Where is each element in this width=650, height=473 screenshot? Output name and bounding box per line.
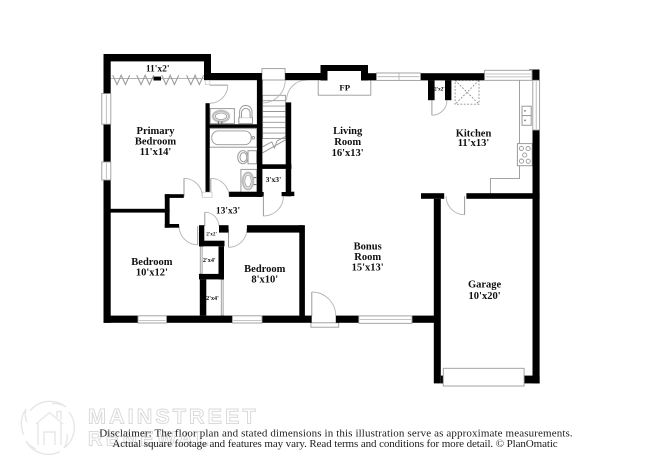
svg-text:Bedroom: Bedroom: [135, 137, 176, 148]
svg-text:10'x12': 10'x12': [136, 268, 168, 279]
svg-text:FP: FP: [339, 82, 350, 92]
svg-text:16'x13': 16'x13': [332, 148, 364, 159]
svg-text:Room: Room: [334, 137, 361, 148]
svg-text:11'x14': 11'x14': [140, 147, 172, 158]
svg-text:Actual square footage and feat: Actual square footage and features may v…: [112, 438, 557, 450]
svg-text:3'x3': 3'x3': [266, 175, 282, 184]
svg-text:15'x13': 15'x13': [352, 262, 384, 273]
svg-text:Primary: Primary: [137, 126, 176, 137]
svg-text:Living: Living: [333, 126, 363, 137]
svg-text:Bedroom: Bedroom: [131, 257, 172, 268]
svg-text:13'x3': 13'x3': [216, 207, 240, 217]
svg-text:10'x20': 10'x20': [469, 291, 501, 302]
svg-text:Bonus: Bonus: [354, 241, 382, 252]
svg-text:2'x2': 2'x2': [206, 232, 217, 238]
svg-text:2'x4': 2'x4': [206, 295, 219, 302]
svg-text:Room: Room: [354, 252, 381, 263]
svg-text:11'x13': 11'x13': [458, 138, 490, 149]
svg-text:11'x2': 11'x2': [146, 64, 170, 74]
svg-text:2'x4': 2'x4': [203, 257, 216, 264]
svg-text:2'x2': 2'x2': [434, 87, 445, 93]
svg-text:8'x10': 8'x10': [251, 275, 278, 286]
svg-text:Garage: Garage: [468, 279, 502, 290]
svg-text:Bedroom: Bedroom: [244, 264, 285, 275]
svg-text:MAINSTREET: MAINSTREET: [88, 405, 259, 429]
